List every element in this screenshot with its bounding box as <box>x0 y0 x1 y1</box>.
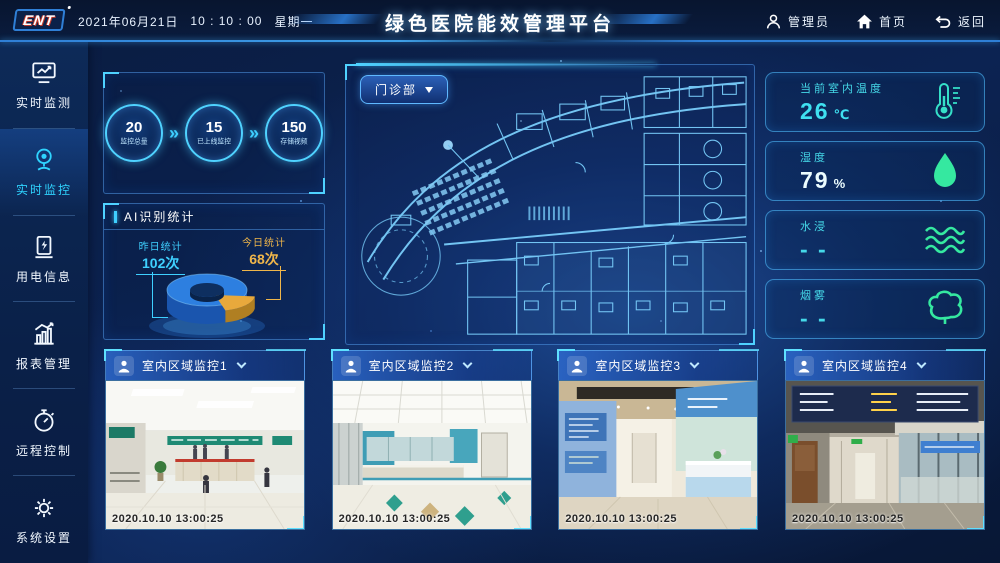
time-text: 10 : 10 : 00 <box>190 14 262 28</box>
water-leak-label: 水浸 <box>800 218 906 234</box>
person-bust-icon <box>117 359 131 373</box>
humidity-value: 79 <box>800 167 830 194</box>
header-actions: 管理员 首页 返回 <box>765 0 986 42</box>
sidebar-item-realtime-surveillance[interactable]: 实时监控 <box>0 129 88 216</box>
stat-label: 存储视频 <box>280 137 307 146</box>
top-header: ENT 2021年06月21日 10 : 10 : 00 星期一 绿色医院能效管… <box>0 0 1000 42</box>
camera-4-image <box>786 381 984 529</box>
charging-pile-icon <box>29 233 59 260</box>
callout-connector <box>266 299 281 300</box>
ent-logo: ENT <box>12 9 65 31</box>
stat-label: 监控总量 <box>120 137 147 146</box>
camera-card-4: 室内区域监控4 <box>785 350 985 530</box>
sidebar-item-report-management[interactable]: 报表管理 <box>0 302 88 389</box>
floor-plan-blueprint <box>350 69 750 340</box>
sidebar-item-realtime-monitoring[interactable]: 实时监测 <box>0 42 88 129</box>
smoke-icon <box>923 288 967 330</box>
header-decoration-right <box>596 14 693 24</box>
stopwatch-icon <box>29 407 59 434</box>
department-selector-label: 门诊部 <box>375 81 417 98</box>
camera-4-header[interactable]: 室内区域监控4 <box>785 350 985 380</box>
ai-recognition-panel: AI识别统计 昨日统计 102次 今日统计 68次 <box>103 203 325 340</box>
home-button[interactable]: 首页 <box>856 13 907 30</box>
temperature-card: 当前室内温度 26℃ <box>765 72 985 132</box>
date-text: 2021年06月21日 <box>78 13 178 30</box>
camera-timestamp: 2020.10.10 13:00:25 <box>339 513 451 525</box>
ai-panel-title-text: AI识别统计 <box>124 208 195 225</box>
camera-card-2: 室内区域监控2 <box>332 350 532 530</box>
yesterday-stat-callout: 昨日统计 102次 <box>136 238 185 275</box>
stat-value: 150 <box>282 119 307 136</box>
webcam-icon <box>29 146 59 173</box>
gear-icon <box>29 494 59 521</box>
today-stat-callout: 今日统计 68次 <box>242 234 286 271</box>
back-button[interactable]: 返回 <box>933 13 986 30</box>
stat-online-surveillance: 15 已上线监控 <box>185 104 243 162</box>
stat-value: 20 <box>126 119 143 136</box>
person-bust-icon <box>797 359 811 373</box>
panel-top-accent <box>356 63 656 66</box>
yesterday-value: 102次 <box>136 253 185 275</box>
camera-1-image <box>106 381 304 529</box>
camera-title: 室内区域监控3 <box>595 357 681 374</box>
stat-total-surveillance: 20 监控总量 <box>105 104 163 162</box>
page-title: 绿色医院能效管理平台 <box>385 9 615 36</box>
chevron-down-icon <box>236 359 246 369</box>
camera-title: 室内区域监控2 <box>369 357 455 374</box>
double-arrow-icon <box>249 123 259 144</box>
camera-timestamp: 2020.10.10 13:00:25 <box>792 513 904 525</box>
dashboard-root: ENT 2021年06月21日 10 : 10 : 00 星期一 绿色医院能效管… <box>0 0 1000 563</box>
stat-value: 15 <box>206 119 223 136</box>
sidebar-item-label: 实时监测 <box>16 94 72 111</box>
camera-card-3: 室内区域监控3 <box>558 350 758 530</box>
sidebar-item-system-settings[interactable]: 系统设置 <box>0 476 88 563</box>
floor-plan-panel: 门诊部 <box>345 64 755 345</box>
monitor-chart-icon <box>29 59 59 86</box>
sidebar-item-remote-control[interactable]: 远程控制 <box>0 389 88 476</box>
chevron-down-icon <box>463 359 473 369</box>
water-drop-icon <box>925 149 965 193</box>
home-icon <box>856 13 873 30</box>
smoke-label: 烟雾 <box>800 287 906 303</box>
title-accent-bar <box>114 211 117 223</box>
chevron-down-icon <box>690 359 700 369</box>
smoke-value: - - <box>800 305 828 332</box>
home-label: 首页 <box>879 13 907 30</box>
today-value: 68次 <box>242 249 286 271</box>
humidity-label: 湿度 <box>800 149 906 165</box>
person-bust-icon <box>570 359 584 373</box>
camera-grid: 室内区域监控1 <box>105 350 985 530</box>
thermometer-icon <box>923 80 967 124</box>
person-bust-icon <box>344 359 358 373</box>
camera-2-feed[interactable]: 2020.10.10 13:00:25 <box>332 380 532 530</box>
water-leak-card: 水浸 - - <box>765 210 985 270</box>
temperature-unit: ℃ <box>834 107 850 123</box>
back-label: 返回 <box>958 13 986 30</box>
water-leak-value: - - <box>800 236 828 263</box>
camera-1-header[interactable]: 室内区域监控1 <box>105 350 305 380</box>
camera-title: 室内区域监控4 <box>822 357 908 374</box>
callout-connector <box>152 317 168 318</box>
chevron-down-icon <box>916 359 926 369</box>
humidity-card: 湿度 79% <box>765 141 985 201</box>
sidebar-item-label: 远程控制 <box>16 442 72 459</box>
camera-2-image <box>333 381 531 529</box>
camera-timestamp: 2020.10.10 13:00:25 <box>565 513 677 525</box>
camera-title: 室内区域监控1 <box>142 357 228 374</box>
temperature-value: 26 <box>800 98 830 125</box>
header-decoration-left <box>286 14 383 24</box>
temperature-label: 当前室内温度 <box>800 80 906 96</box>
stat-label: 已上线监控 <box>197 137 231 146</box>
callout-connector <box>280 266 281 300</box>
double-arrow-icon <box>169 123 179 144</box>
today-label: 今日统计 <box>242 234 286 249</box>
sidebar-item-label: 系统设置 <box>16 529 72 546</box>
camera-1-feed[interactable]: 2020.10.10 13:00:25 <box>105 380 305 530</box>
camera-4-feed[interactable]: 2020.10.10 13:00:25 <box>785 380 985 530</box>
sidebar-item-label: 实时监控 <box>16 181 72 198</box>
stat-stored-videos: 150 存储视频 <box>265 104 323 162</box>
user-label: 管理员 <box>788 13 830 30</box>
camera-2-header[interactable]: 室内区域监控2 <box>332 350 532 380</box>
user-button[interactable]: 管理员 <box>765 13 830 30</box>
humidity-unit: % <box>834 176 846 191</box>
callout-connector <box>152 272 153 318</box>
yesterday-label: 昨日统计 <box>136 238 185 253</box>
sidebar-item-electricity-info[interactable]: 用电信息 <box>0 216 88 303</box>
camera-3-image <box>559 381 757 529</box>
sidebar: 实时监测 实时监控 用电信息 报表管理 远程控制 系统设置 <box>0 42 88 563</box>
sidebar-item-label: 报表管理 <box>16 355 72 372</box>
back-arrow-icon <box>933 13 952 30</box>
waves-icon <box>922 222 968 258</box>
camera-3-feed[interactable]: 2020.10.10 13:00:25 <box>558 380 758 530</box>
camera-timestamp: 2020.10.10 13:00:25 <box>112 513 224 525</box>
bar-chart-icon <box>29 320 59 347</box>
user-icon <box>765 13 782 30</box>
sidebar-item-label: 用电信息 <box>16 268 72 285</box>
datetime: 2021年06月21日 10 : 10 : 00 星期一 <box>78 0 313 42</box>
department-selector[interactable]: 门诊部 <box>360 75 448 104</box>
dropdown-triangle-icon <box>425 87 433 97</box>
camera-card-1: 室内区域监控1 <box>105 350 305 530</box>
surveillance-stats-panel: 20 监控总量 15 已上线监控 150 存储视频 <box>103 72 325 194</box>
smoke-card: 烟雾 - - <box>765 279 985 339</box>
camera-3-header[interactable]: 室内区域监控3 <box>558 350 758 380</box>
ai-panel-title: AI识别统计 <box>104 204 324 230</box>
